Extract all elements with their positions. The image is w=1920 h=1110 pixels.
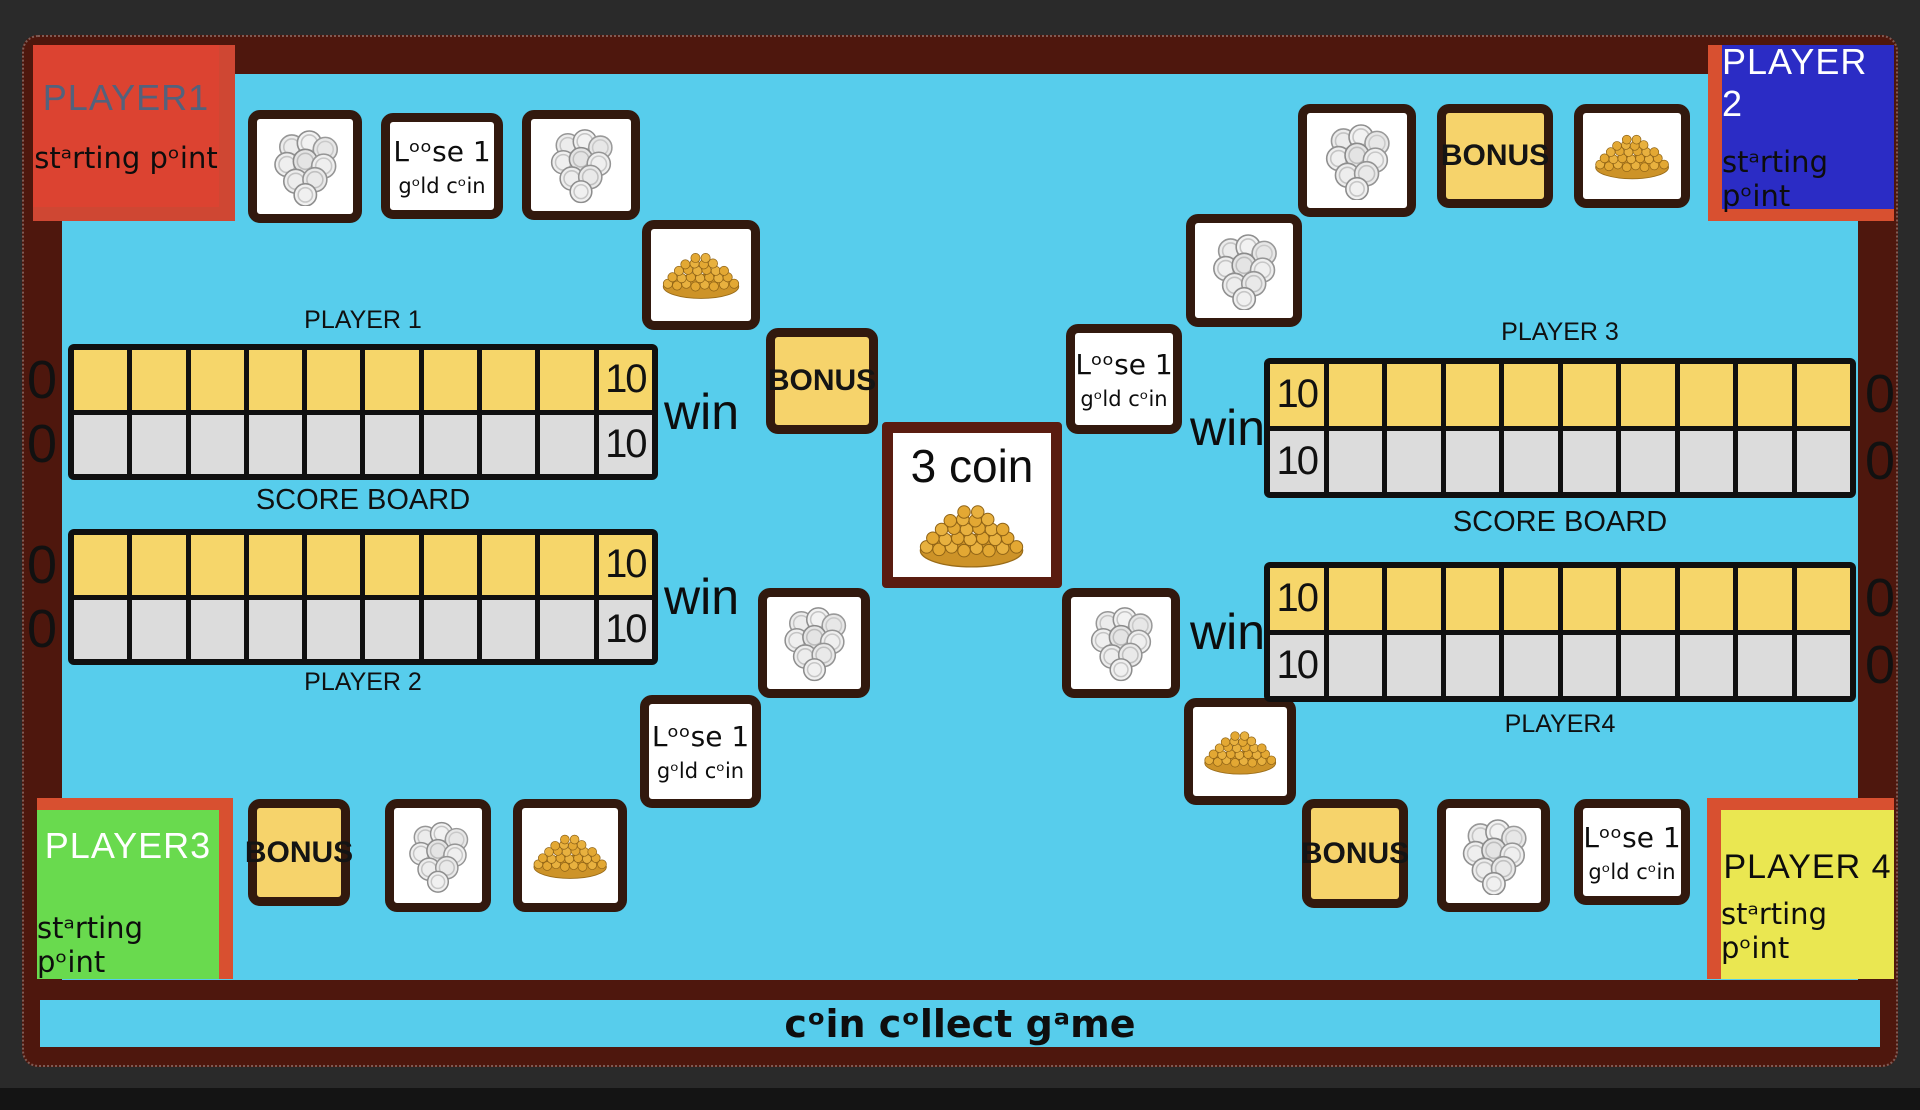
tile-silver-coins[interactable] — [248, 110, 362, 223]
tile-bonus[interactable]: BONUS — [1302, 799, 1408, 908]
score-cell[interactable] — [1738, 568, 1792, 630]
score-cell[interactable] — [482, 415, 535, 475]
scoreboard-player1: 10 10 — [68, 344, 658, 480]
score-cell[interactable] — [1329, 568, 1383, 630]
score-cell[interactable] — [249, 350, 302, 410]
tile-bonus[interactable]: BONUS — [248, 799, 350, 906]
player1-title: PLAYER1 — [43, 77, 209, 119]
gold-coin-pile-icon — [902, 497, 1041, 572]
score-cell[interactable] — [1797, 568, 1851, 630]
score-cell-end[interactable]: 10 — [1270, 364, 1324, 426]
score-cell[interactable] — [482, 350, 535, 410]
score-cell[interactable] — [540, 350, 593, 410]
bonus-label: BONUS — [1441, 139, 1549, 173]
tile-silver-coins[interactable] — [1062, 588, 1180, 698]
silver-coins-icon — [265, 127, 346, 207]
score-row-yellow: 10 — [1270, 364, 1850, 426]
score-cell[interactable] — [1387, 431, 1441, 493]
score-cell[interactable] — [365, 415, 418, 475]
score-row-yellow: 10 — [1270, 568, 1850, 630]
score-cell[interactable] — [540, 415, 593, 475]
tile-silver-coins[interactable] — [1437, 799, 1550, 912]
score-zero-label: 0 — [20, 414, 64, 474]
score-cell[interactable] — [1621, 568, 1675, 630]
silver-coins-icon — [1079, 604, 1163, 681]
score-cell[interactable] — [1797, 431, 1851, 493]
scoreboard-player2: 10 10 — [68, 529, 658, 665]
score-cell[interactable] — [1563, 568, 1617, 630]
score-cell-end[interactable]: 10 — [599, 350, 652, 410]
score-cell[interactable] — [1504, 364, 1558, 426]
score-zero-label: 0 — [1858, 364, 1902, 424]
score-cell[interactable] — [540, 535, 593, 595]
tile-bonus[interactable]: BONUS — [1437, 104, 1553, 208]
score-cell[interactable] — [1738, 364, 1792, 426]
score-zero-label: 0 — [1858, 568, 1902, 628]
silver-coins-icon — [539, 126, 623, 203]
score-cell[interactable] — [307, 415, 360, 475]
score-cell[interactable] — [307, 600, 360, 660]
score-cell[interactable] — [1387, 568, 1441, 630]
score-cell[interactable] — [1446, 431, 1500, 493]
score-cell[interactable] — [1738, 431, 1792, 493]
score-zero-label: 0 — [1858, 431, 1902, 491]
score-row-gray: 10 — [1270, 635, 1850, 697]
tile-gold-pile[interactable] — [513, 799, 627, 912]
player1-subtitle: stᵃrting pᵒint — [34, 141, 217, 175]
score-cell[interactable] — [1563, 635, 1617, 697]
center-3-coin-label: 3 coin — [911, 439, 1034, 493]
score-cell[interactable] — [1504, 635, 1558, 697]
score-cell[interactable] — [132, 535, 185, 595]
score-cell[interactable] — [191, 415, 244, 475]
score-cell[interactable] — [1563, 364, 1617, 426]
scoreboard-player3: 10 10 — [1264, 358, 1856, 498]
scoreboard-player4: 10 10 — [1264, 562, 1856, 702]
score-cell[interactable] — [132, 600, 185, 660]
score-cell[interactable] — [1446, 635, 1500, 697]
player1-start-corner[interactable]: PLAYER1 stᵃrting pᵒint — [33, 45, 235, 221]
score-cell[interactable] — [424, 415, 477, 475]
score-cell[interactable] — [132, 350, 185, 410]
score-cell[interactable] — [1329, 431, 1383, 493]
tile-gold-pile[interactable] — [642, 220, 760, 330]
tile-gold-pile[interactable] — [1574, 104, 1690, 208]
tile-loose-gold-coin[interactable]: Lᵒᵒse 1 gᵒld cᵒin — [1574, 799, 1690, 905]
win-label: win — [1190, 604, 1265, 660]
score-cell[interactable] — [1446, 364, 1500, 426]
player2-title: PLAYER 2 — [1722, 41, 1894, 125]
title-strip: cᵒin cᵒllect gᵃme — [40, 1000, 1880, 1047]
score-cell[interactable] — [74, 415, 127, 475]
tile-silver-coins[interactable] — [758, 588, 870, 698]
score-zero-label: 0 — [1858, 635, 1902, 695]
loose-title: Lᵒᵒse 1 — [1075, 348, 1172, 381]
score-cell[interactable] — [1621, 431, 1675, 493]
silver-coins-icon — [775, 604, 854, 681]
score-cell[interactable] — [1680, 364, 1734, 426]
score-row-yellow: 10 — [74, 350, 652, 410]
score-cell[interactable] — [1329, 635, 1383, 697]
score-cell[interactable] — [307, 535, 360, 595]
scoreboard-right-bottom-label: PLAYER4 — [1264, 710, 1856, 739]
score-cell[interactable] — [249, 415, 302, 475]
score-cell[interactable] — [1680, 635, 1734, 697]
score-cell[interactable] — [307, 350, 360, 410]
gold-coin-pile-icon — [526, 826, 614, 885]
scoreboard-right-top-label: PLAYER 3 — [1264, 318, 1856, 347]
loose-title: Lᵒᵒse 1 — [1583, 821, 1680, 854]
score-cell[interactable] — [1504, 568, 1558, 630]
silver-coins-icon — [1454, 816, 1534, 896]
score-cell[interactable] — [1680, 431, 1734, 493]
loose-subtitle: gᵒld cᵒin — [1588, 860, 1675, 884]
score-cell[interactable] — [1504, 431, 1558, 493]
score-cell[interactable] — [424, 535, 477, 595]
scoreboard-left-middle-label: SCORE BOARD — [68, 484, 658, 517]
bonus-label: BONUS — [245, 836, 353, 870]
score-cell[interactable] — [1621, 364, 1675, 426]
score-cell[interactable] — [424, 350, 477, 410]
score-cell[interactable] — [1738, 635, 1792, 697]
score-cell[interactable] — [191, 600, 244, 660]
tile-silver-coins[interactable] — [1298, 104, 1416, 217]
score-row-gray: 10 — [74, 415, 652, 475]
score-cell[interactable] — [74, 535, 127, 595]
player2-start-corner[interactable]: PLAYER 2 stᵃrting pᵒint — [1708, 45, 1894, 221]
silver-coins-icon — [401, 816, 475, 896]
tile-loose-gold-coin[interactable]: Lᵒᵒse 1 gᵒld cᵒin — [1066, 324, 1182, 434]
win-label: win — [1190, 400, 1265, 456]
loose-title: Lᵒᵒse 1 — [393, 135, 490, 168]
score-cell[interactable] — [1563, 431, 1617, 493]
game-board-canvas: PLAYER1 stᵃrting pᵒint PLAYER 2 stᵃrting… — [0, 0, 1920, 1110]
tile-silver-coins[interactable] — [1186, 214, 1302, 327]
score-cell[interactable] — [365, 350, 418, 410]
tile-loose-gold-coin[interactable]: Lᵒᵒse 1 gᵒld cᵒin — [381, 113, 503, 219]
score-cell[interactable] — [1329, 364, 1383, 426]
score-cell-end[interactable]: 10 — [1270, 431, 1324, 493]
score-cell[interactable] — [1797, 635, 1851, 697]
score-cell[interactable] — [191, 535, 244, 595]
score-cell[interactable] — [1387, 364, 1441, 426]
score-cell[interactable] — [1797, 364, 1851, 426]
score-zero-label: 0 — [20, 350, 64, 410]
score-cell[interactable] — [1387, 635, 1441, 697]
score-cell[interactable] — [482, 600, 535, 660]
score-cell-end[interactable]: 10 — [599, 535, 652, 595]
loose-subtitle: gᵒld cᵒin — [398, 174, 485, 198]
score-cell[interactable] — [365, 600, 418, 660]
tile-silver-coins[interactable] — [522, 110, 640, 220]
score-cell[interactable] — [1621, 635, 1675, 697]
loose-title: Lᵒᵒse 1 — [652, 720, 749, 753]
gold-coin-pile-icon — [655, 246, 747, 303]
score-cell[interactable] — [1680, 568, 1734, 630]
score-cell-end[interactable]: 10 — [1270, 568, 1324, 630]
silver-coins-icon — [1203, 231, 1285, 311]
tile-bonus[interactable]: BONUS — [766, 328, 878, 434]
score-cell-end[interactable]: 10 — [1270, 635, 1324, 697]
score-row-yellow: 10 — [74, 535, 652, 595]
gold-coin-pile-icon — [1587, 129, 1677, 182]
win-label: win — [664, 384, 739, 440]
score-zero-label: 0 — [20, 599, 64, 659]
score-cell[interactable] — [74, 350, 127, 410]
score-cell[interactable] — [1446, 568, 1500, 630]
score-cell[interactable] — [482, 535, 535, 595]
score-cell[interactable] — [365, 535, 418, 595]
win-label: win — [664, 569, 739, 625]
tile-loose-gold-coin[interactable]: Lᵒᵒse 1 gᵒld cᵒin — [640, 695, 761, 808]
scoreboard-left-top-label: PLAYER 1 — [68, 306, 658, 335]
score-cell-end[interactable]: 10 — [599, 415, 652, 475]
score-row-gray: 10 — [1270, 431, 1850, 493]
score-cell-end[interactable]: 10 — [599, 600, 652, 660]
score-cell[interactable] — [191, 350, 244, 410]
player4-start-corner[interactable]: PLAYER 4 stᵃrting pᵒint — [1707, 798, 1894, 979]
score-cell[interactable] — [249, 600, 302, 660]
loose-subtitle: gᵒld cᵒin — [1080, 387, 1167, 411]
bottom-shadow-strip — [0, 1088, 1920, 1110]
tile-silver-coins[interactable] — [385, 799, 491, 912]
silver-coins-icon — [1315, 121, 1399, 201]
scoreboard-right-middle-label: SCORE BOARD — [1264, 506, 1856, 539]
player3-start-corner[interactable]: PLAYER3 stᵃrting pᵒint — [37, 798, 233, 979]
score-cell[interactable] — [424, 600, 477, 660]
player3-title: PLAYER3 — [45, 825, 211, 867]
bonus-label: BONUS — [768, 364, 876, 398]
scoreboard-left-bottom-label: PLAYER 2 — [68, 668, 658, 697]
score-cell[interactable] — [74, 600, 127, 660]
score-cell[interactable] — [249, 535, 302, 595]
player4-title: PLAYER 4 — [1723, 848, 1891, 887]
player2-subtitle: stᵃrting pᵒint — [1722, 145, 1894, 213]
player4-subtitle: stᵃrting pᵒint — [1721, 897, 1894, 965]
loose-subtitle: gᵒld cᵒin — [657, 759, 744, 783]
bonus-label: BONUS — [1301, 837, 1409, 871]
game-title: cᵒin cᵒllect gᵃme — [784, 1002, 1135, 1046]
tile-center-3-coin[interactable]: 3 coin — [882, 422, 1062, 588]
player3-subtitle: stᵃrting pᵒint — [37, 911, 219, 979]
score-row-gray: 10 — [74, 600, 652, 660]
score-cell[interactable] — [132, 415, 185, 475]
score-cell[interactable] — [540, 600, 593, 660]
score-zero-label: 0 — [20, 535, 64, 595]
